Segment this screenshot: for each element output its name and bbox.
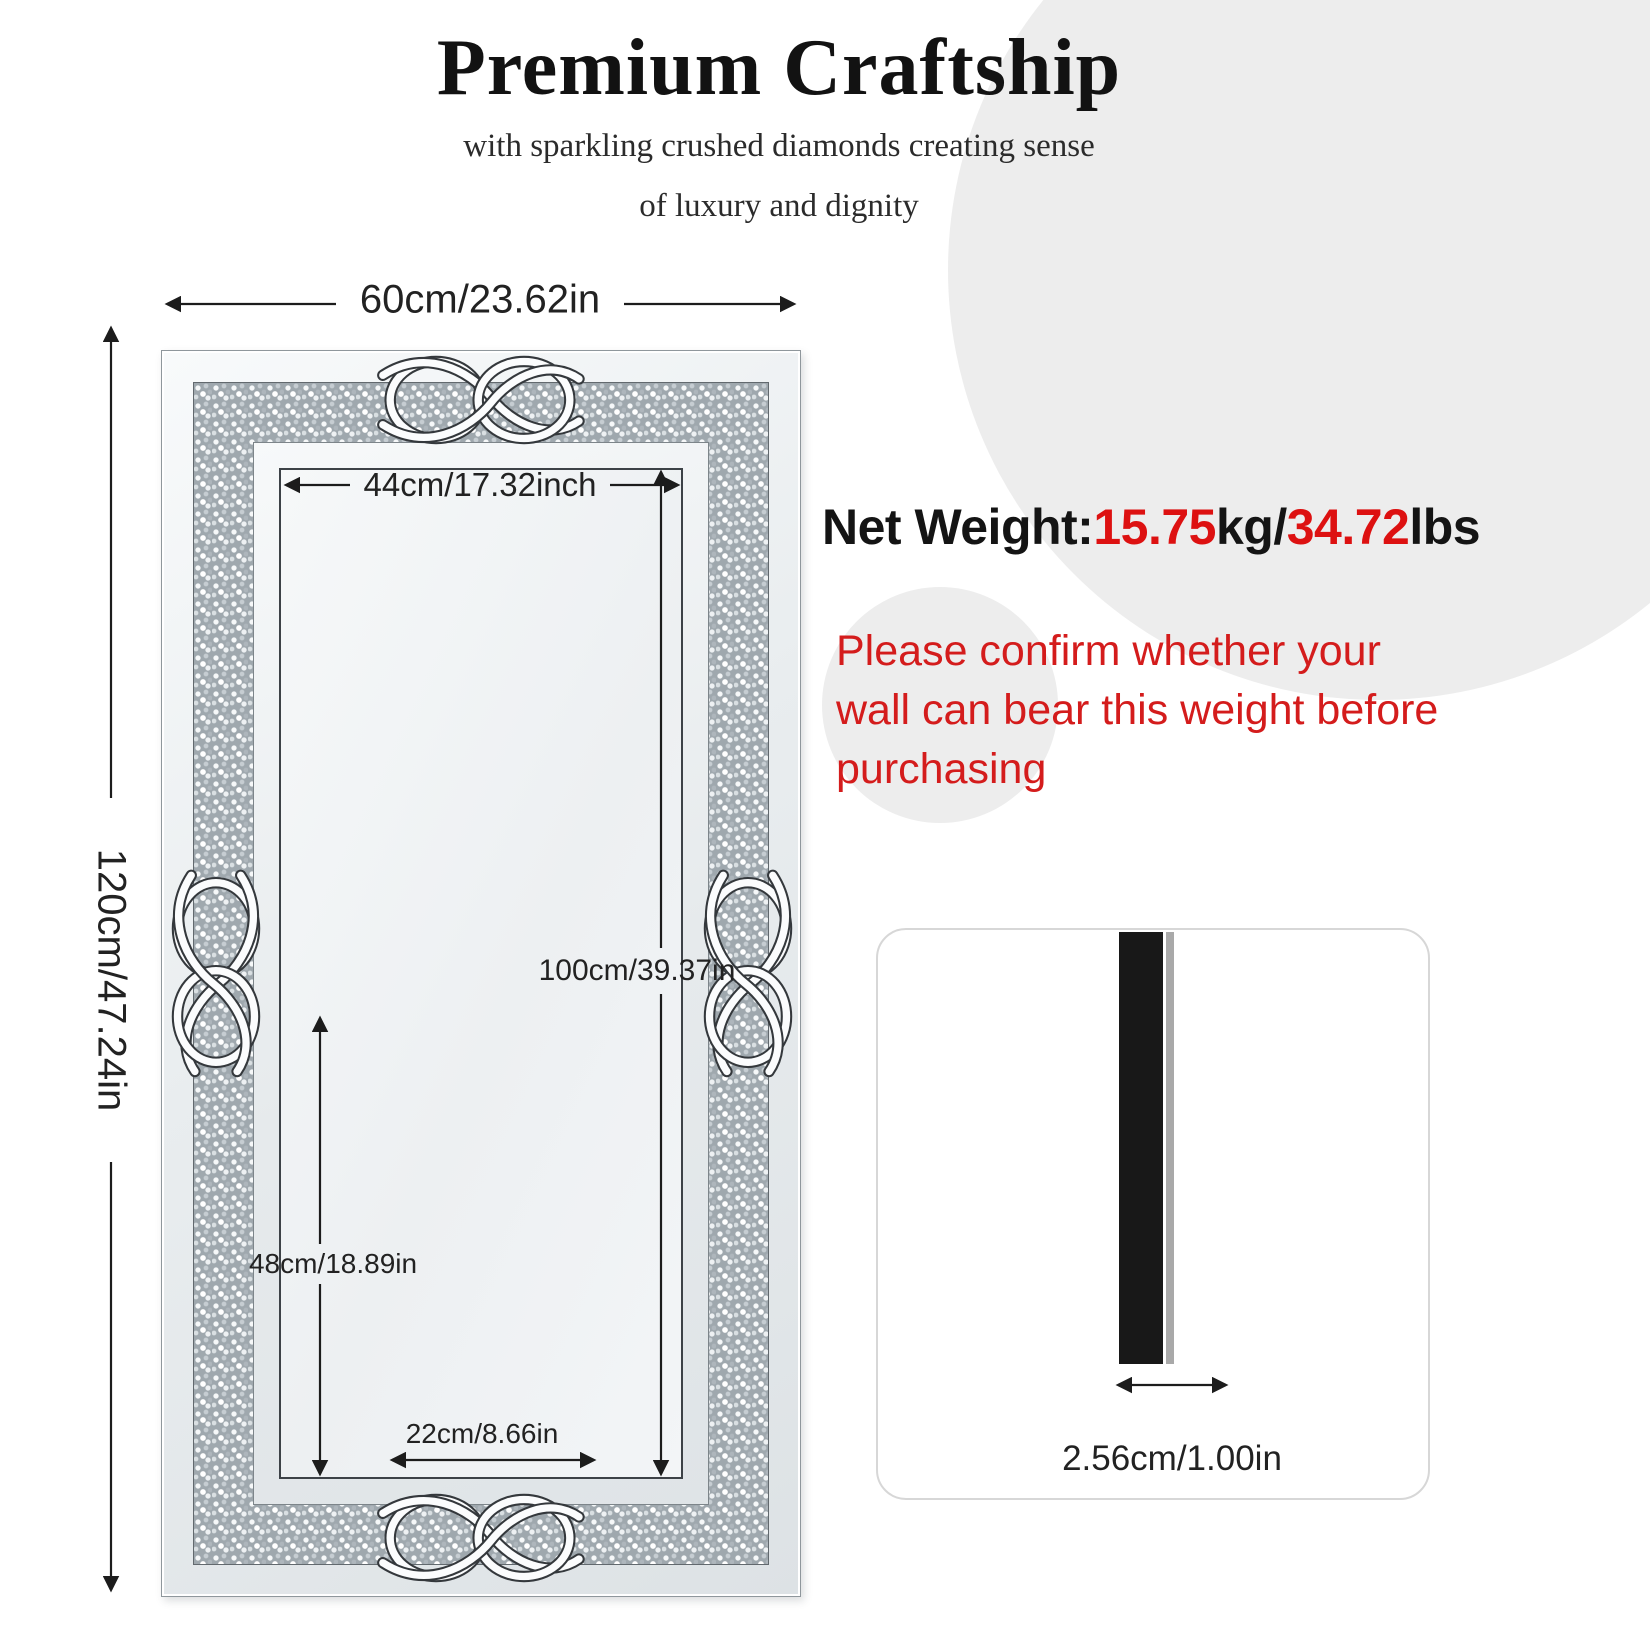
celtic-knot-top [370,336,590,464]
thickness-label: 2.56cm/1.00in [1062,1439,1282,1479]
celtic-knot-bottom [370,1472,590,1604]
inner-width-label: 44cm/17.32inch [364,466,597,504]
net-weight-kg-value: 15.75 [1093,499,1216,555]
net-weight-label: Net Weight: [822,499,1093,555]
warning-line-1: Please confirm whether your [836,622,1536,681]
edge-profile-front [1119,932,1163,1364]
partial-height-label: 48cm/18.89in [249,1248,417,1280]
partial-width-label: 22cm/8.66in [406,1418,559,1450]
net-weight-lbs-unit: lbs [1409,499,1480,555]
inner-height-label: 100cm/39.37in [539,954,736,988]
overall-width-label: 60cm/23.62in [360,278,600,323]
page-title: Premium Craftship [0,24,1558,114]
warning-line-2: wall can bear this weight before [836,681,1536,740]
net-weight-lbs-value: 34.72 [1287,499,1410,555]
header: Premium Craftship with sparkling crushed… [0,24,1558,234]
net-weight-kg-unit: kg/ [1216,499,1287,555]
wall-weight-warning: Please confirm whether your wall can bea… [836,622,1536,799]
subtitle-line-2: of luxury and dignity [0,178,1558,234]
warning-line-3: purchasing [836,740,1536,799]
mirror-product-infographic: Premium Craftship with sparkling crushed… [0,0,1650,1650]
subtitle-line-1: with sparkling crushed diamonds creating… [0,118,1558,174]
edge-profile-backing [1166,932,1174,1364]
overall-height-label: 120cm/47.24in [89,849,134,1111]
net-weight: Net Weight:15.75kg/34.72lbs [822,498,1480,556]
celtic-knot-left [154,863,279,1083]
side-view-card: 2.56cm/1.00in [876,928,1430,1500]
mirror-edge-profile [1119,932,1174,1364]
thickness-arrow [1104,1370,1240,1400]
